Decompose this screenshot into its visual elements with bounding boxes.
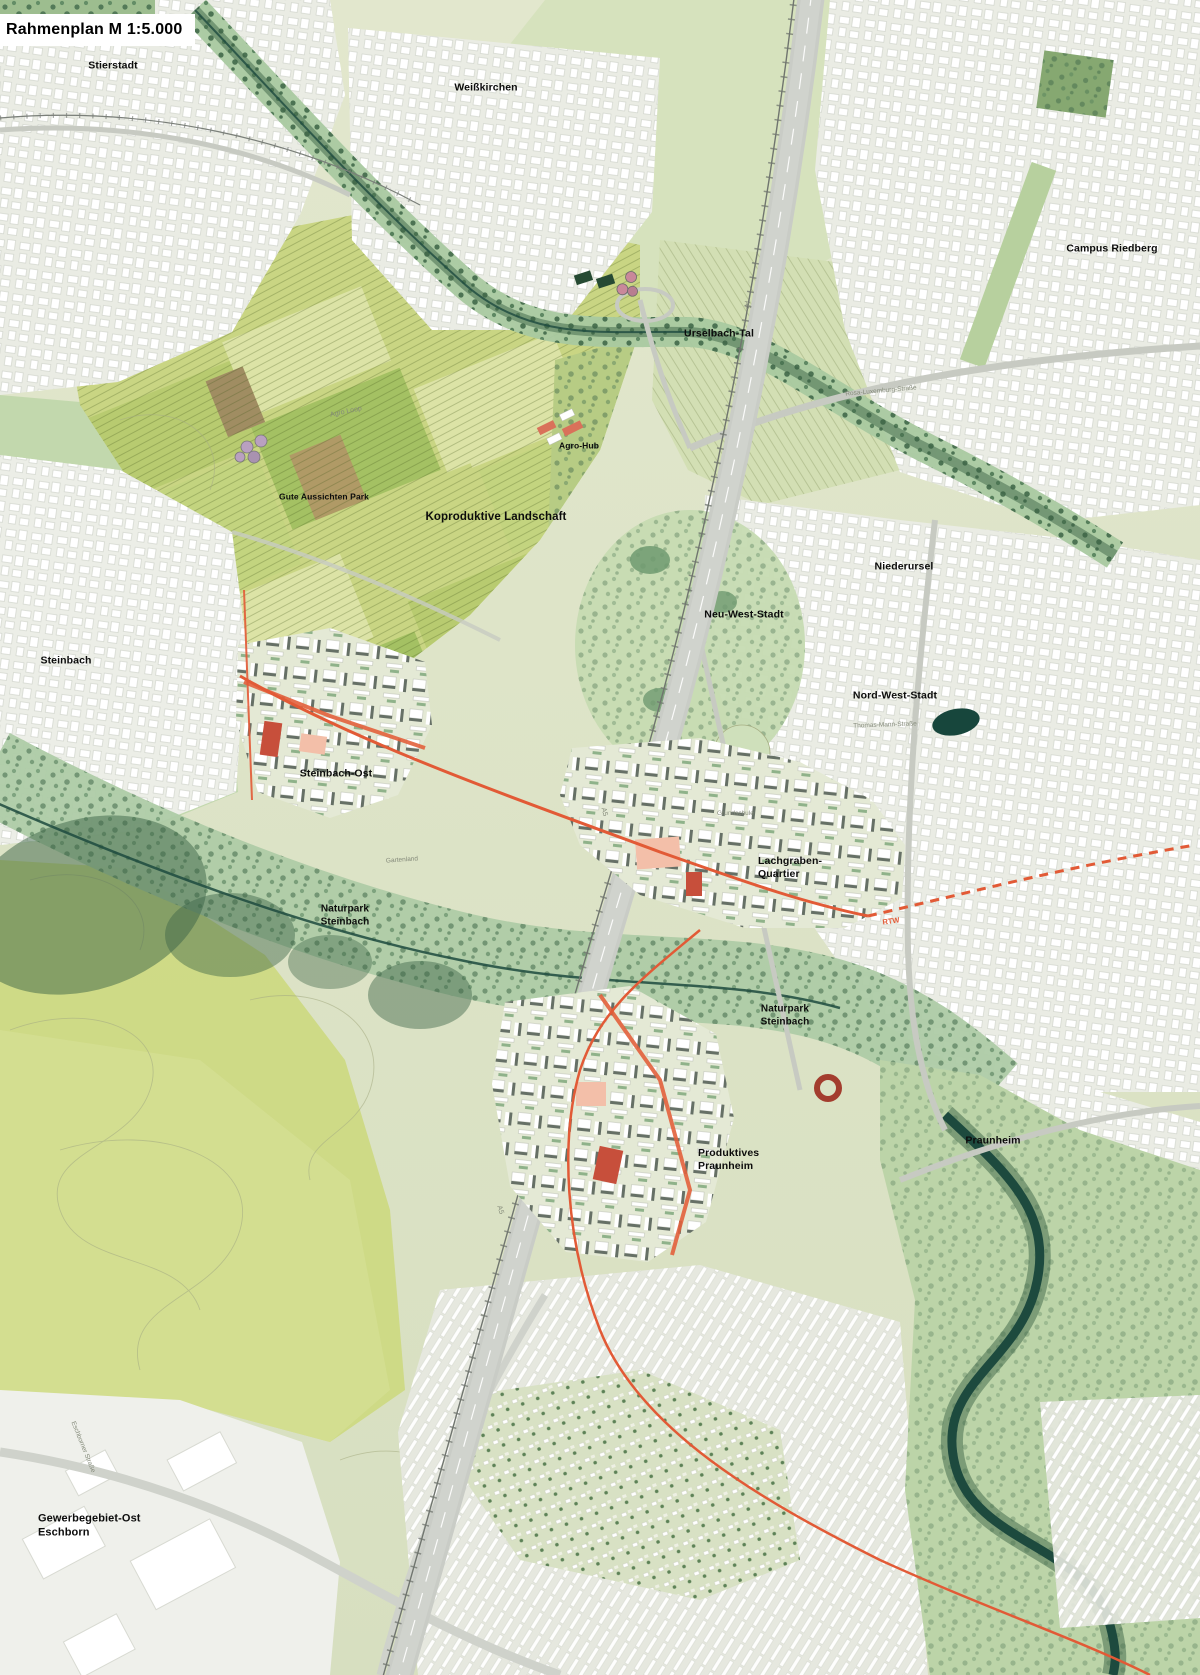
map-label-niederursel: Niederursel xyxy=(875,560,934,573)
map-label-gewerbegebiet-ost-eschborn: Gewerbegebiet-Ost Eschborn xyxy=(38,1512,141,1540)
map-label-naturpark-steinbach-sued: Naturpark Steinbach xyxy=(761,1004,810,1029)
map-label-koproduktive-landschaft: Koproduktive Landschaft xyxy=(426,510,567,524)
map-label-neu-west-stadt: Neu-West-Stadt xyxy=(704,608,783,621)
rahmenplan-map: Rahmenplan M 1:5.000 StierstadtWeißkirch… xyxy=(0,0,1200,1675)
map-label-autobahn-a5-nord: A5 xyxy=(743,300,751,310)
map-label-stierstadt: Stierstadt xyxy=(88,59,137,72)
map-label-agro-hub: Agro-Hub xyxy=(559,441,599,452)
map-label-naturpark-steinbach-nord: Naturpark Steinbach xyxy=(321,904,370,929)
map-label-praunheim: Praunheim xyxy=(965,1134,1020,1147)
map-label-urselbach-tal: Urselbach-Tal xyxy=(684,327,754,340)
map-label-grundschule: Grundschule xyxy=(717,810,754,817)
map-title: Rahmenplan M 1:5.000 xyxy=(0,14,195,46)
map-label-steinbach-ost: Steinbach-Ost xyxy=(300,767,372,780)
map-label-nord-west-stadt: Nord-West-Stadt xyxy=(853,689,937,702)
map-label-lachgraben-quartier: Lachgraben- Quartier xyxy=(758,855,822,881)
map-label-gute-aussichten-park: Gute Aussichten Park xyxy=(279,492,369,503)
map-canvas xyxy=(0,0,1200,1675)
map-label-produktives-praunheim: Produktives Praunheim xyxy=(698,1147,759,1173)
map-label-campus-riedberg: Campus Riedberg xyxy=(1066,242,1157,255)
map-label-weisskirchen: Weißkirchen xyxy=(454,81,517,94)
map-label-steinbach: Steinbach xyxy=(40,654,91,667)
